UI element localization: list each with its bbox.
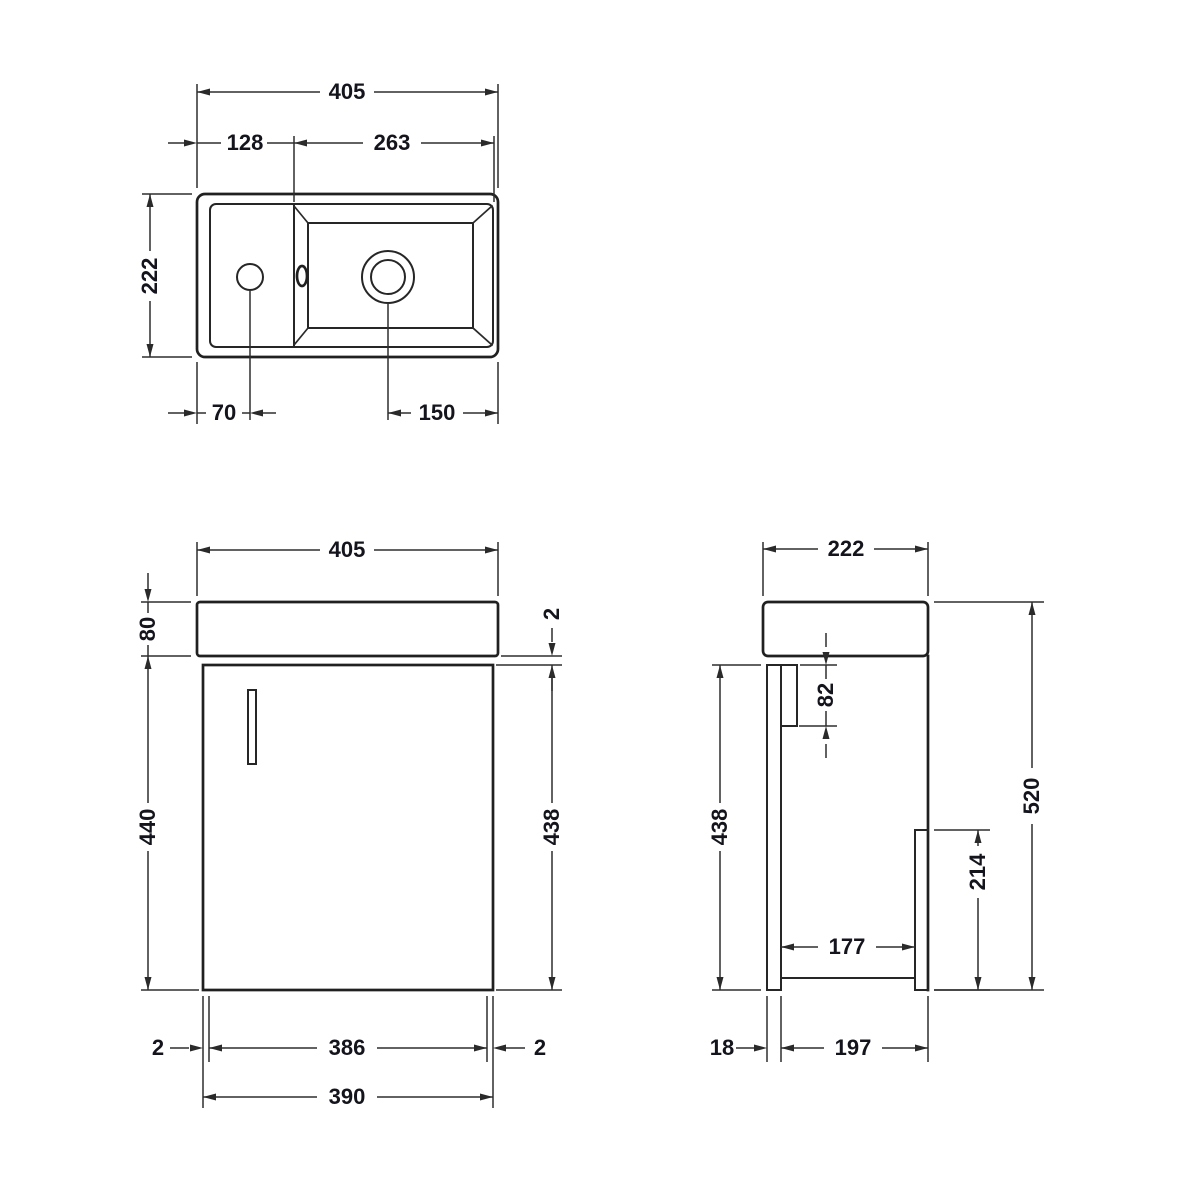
bowl-bevel-lines: [294, 206, 492, 345]
side-view: 222 520 82 438 214: [707, 536, 1044, 1062]
dim-label-plan-overall-depth: 222: [137, 258, 162, 295]
front-view: 405 80 440 2 438: [135, 537, 564, 1109]
waste-hole-outer: [362, 251, 414, 303]
dim-label-front-door-height: 438: [539, 809, 564, 846]
dim-label-side-hanger-rail: 82: [813, 683, 838, 707]
technical-drawing-canvas: 405 128 263 222 70: [0, 0, 1200, 1200]
drawing-page: 405 128 263 222 70: [0, 0, 1200, 1200]
dim-label-side-cabinet-height: 438: [707, 809, 732, 846]
dim-label-front-right-panel: 2: [534, 1035, 546, 1060]
basin-front-profile: [197, 602, 498, 656]
right-panel-arrow: [493, 1045, 506, 1052]
dim-label-plan-tap-centre: 70: [212, 400, 236, 425]
dim-front-door-height: 438: [496, 665, 564, 990]
dim-label-plan-waste-centre: 150: [419, 400, 456, 425]
basin-side-profile: [763, 602, 928, 656]
door-thickness-arrow: [754, 1045, 767, 1052]
door-side-profile: [767, 665, 781, 990]
dimension-arrow: [549, 977, 556, 990]
door-handle: [248, 690, 256, 764]
dim-label-front-cabinet-height: 440: [135, 809, 160, 846]
bowl-bottom: [308, 223, 473, 328]
plan-view: 405 128 263 222 70: [137, 79, 498, 425]
dim-front-basin-overhang: 2: [496, 608, 564, 691]
dim-side-overall-height: 520: [934, 602, 1044, 990]
basin-outline: [197, 194, 498, 357]
dim-side-overall-depth: 222: [763, 536, 928, 596]
dim-label-side-internal-depth: 177: [829, 934, 866, 959]
dim-label-front-carcass-width: 390: [329, 1084, 366, 1109]
dim-front-carcass-width: 390: [203, 1084, 493, 1109]
dim-label-side-overall-depth: 222: [828, 536, 865, 561]
dim-label-front-overall-width: 405: [329, 537, 366, 562]
dim-label-plan-left-section: 128: [227, 130, 264, 155]
dim-front-cabinet-height: 440: [135, 656, 199, 990]
dim-side-hanger-rail: 82: [799, 633, 838, 758]
dim-plan-tap-centre: 70: [168, 362, 276, 425]
dim-label-front-left-panel: 2: [152, 1035, 164, 1060]
dim-label-side-carcass-depth: 197: [835, 1035, 872, 1060]
extension-lines: [496, 656, 562, 665]
dim-label-side-overall-height: 520: [1019, 778, 1044, 815]
dim-front-overall-width: 405: [197, 537, 498, 596]
overflow-slot: [297, 266, 307, 286]
cabinet-front: [203, 665, 493, 990]
centre-leader-lines: [250, 290, 388, 420]
dim-side-cabinet-height: 438: [707, 665, 761, 990]
dim-front-basin-height: 80: [135, 573, 191, 656]
dim-side-service-recess: 214: [934, 830, 990, 990]
dim-label-front-internal-width: 386: [329, 1035, 366, 1060]
hanger-rail: [781, 665, 797, 726]
dim-side-internal-depth: 177: [781, 934, 915, 959]
dim-label-front-basin-height: 80: [135, 617, 160, 641]
back-panel: [915, 830, 928, 990]
dim-plan-bowl-width: 263: [294, 130, 494, 155]
dimension-arrow: [145, 589, 152, 602]
dim-plan-left-section: 128: [168, 130, 494, 202]
dim-plan-overall-depth: 222: [137, 194, 192, 357]
dimension-arrow: [481, 140, 494, 147]
dim-label-front-basin-overhang: 2: [539, 608, 564, 620]
dim-label-side-door-thickness: 18: [710, 1035, 734, 1060]
dim-side-bottom-chain: 18 197: [710, 996, 928, 1062]
tap-hole: [237, 264, 263, 290]
dim-label-side-service-recess: 214: [965, 853, 990, 890]
left-panel-arrow: [190, 1045, 203, 1052]
dim-plan-waste-centre: 150: [388, 362, 498, 425]
waste-hole-inner: [371, 260, 405, 294]
dim-label-plan-overall-width: 405: [329, 79, 366, 104]
dim-label-plan-bowl-width: 263: [374, 130, 411, 155]
basin-rim: [210, 204, 493, 347]
